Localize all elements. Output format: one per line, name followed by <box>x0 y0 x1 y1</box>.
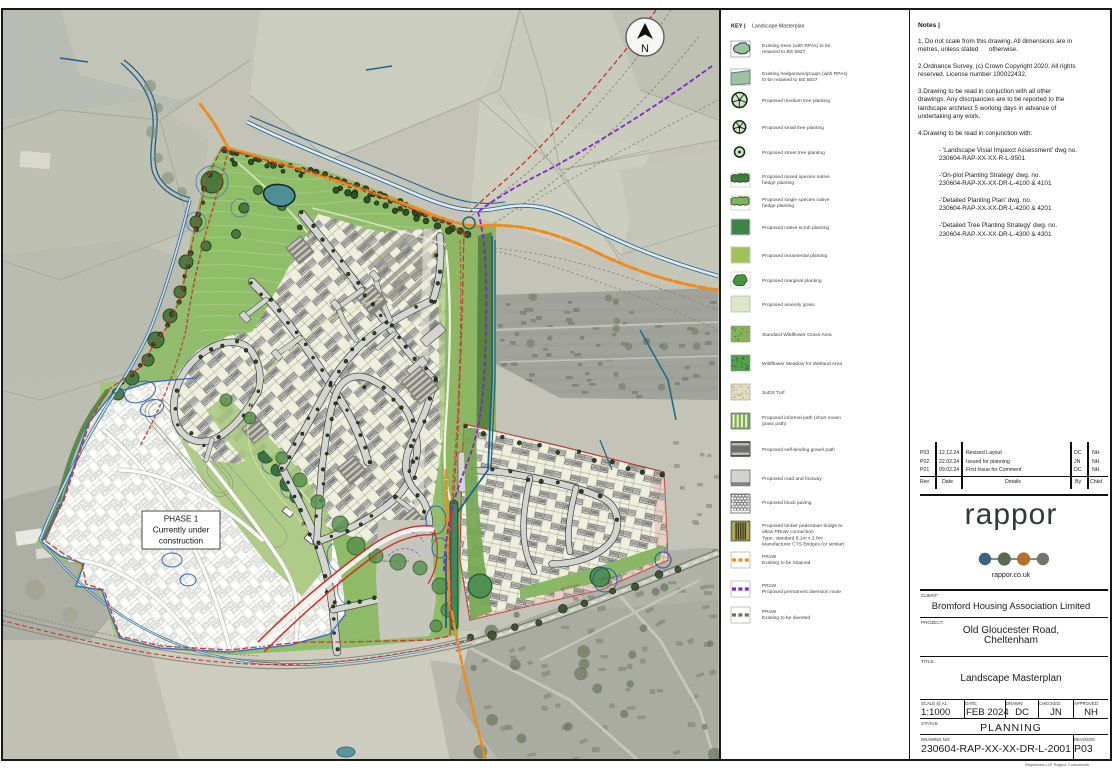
svg-text:grass path): grass path) <box>762 421 787 427</box>
svg-text:Proposed street tree planting: Proposed street tree planting <box>762 150 825 156</box>
svg-text:PRoW: PRoW <box>762 583 777 589</box>
svg-text:Proposed mixed species native: Proposed mixed species native <box>762 174 830 180</box>
svg-text:allow PRoW connection: allow PRoW connection <box>762 529 814 535</box>
svg-text:Wildflower Meadow for Wetland: Wildflower Meadow for Wetland Area <box>762 361 842 367</box>
svg-text:Landscape Masterplan: Landscape Masterplan <box>752 24 805 30</box>
svg-text:hedge planting: hedge planting <box>762 180 794 186</box>
svg-text:PRoW: PRoW <box>762 609 777 615</box>
svg-text:N: N <box>641 43 649 55</box>
svg-text:KEY |: KEY | <box>731 24 746 30</box>
svg-text:Proposed single species native: Proposed single species native <box>762 197 830 203</box>
svg-text:Proposed block paving: Proposed block paving <box>762 500 812 506</box>
svg-text:Proposed self-binding gravel p: Proposed self-binding gravel path <box>762 447 835 453</box>
svg-text:Proposed ornamental planting: Proposed ornamental planting <box>762 253 828 259</box>
svg-text:Proposed road and footway: Proposed road and footway <box>762 476 822 482</box>
svg-text:Proposed informal path (short: Proposed informal path (short mown <box>762 415 841 421</box>
svg-text:PHASE 1: PHASE 1 <box>164 515 199 524</box>
svg-text:hedge planting: hedge planting <box>762 203 794 209</box>
svg-text:Existing to be diverted: Existing to be diverted <box>762 615 810 621</box>
svg-text:Proposed amenity grass: Proposed amenity grass <box>762 302 815 308</box>
svg-text:Proposed medium tree planting: Proposed medium tree planting <box>762 98 830 104</box>
svg-text:Proposed native scrub planting: Proposed native scrub planting <box>762 225 829 231</box>
svg-text:Proposed marginal planting: Proposed marginal planting <box>762 278 822 284</box>
svg-text:Proposed small tree planting: Proposed small tree planting <box>762 125 824 131</box>
svg-text:Currently under: Currently under <box>153 526 210 535</box>
svg-text:Type: standard 8.1m x 2.0m: Type: standard 8.1m x 2.0m <box>762 535 823 541</box>
svg-text:Existing to be retained: Existing to be retained <box>762 560 811 566</box>
svg-text:retained to BS 5837: retained to BS 5837 <box>762 49 806 55</box>
svg-text:PRoW: PRoW <box>762 554 777 560</box>
svg-text:SuDS Turf: SuDS Turf <box>762 390 785 396</box>
svg-text:Existing hedgerows/groups (wit: Existing hedgerows/groups (with RPAs) <box>762 71 848 77</box>
svg-text:Manufacturer CTS Bridges (or s: Manufacturer CTS Bridges (or similar) <box>762 542 845 548</box>
svg-text:to be retained to BS 5837: to be retained to BS 5837 <box>762 77 818 83</box>
svg-text:Proposed timber pedestrian bri: Proposed timber pedestrian bridge to <box>762 523 843 529</box>
svg-text:Proposed permanent diversion r: Proposed permanent diversion route <box>762 589 841 595</box>
svg-text:construction: construction <box>159 537 204 546</box>
svg-text:Standard Wildflower Grass Area: Standard Wildflower Grass Area <box>762 332 832 338</box>
svg-text:Existing trees (with RPAs) to: Existing trees (with RPAs) to be <box>762 43 831 49</box>
